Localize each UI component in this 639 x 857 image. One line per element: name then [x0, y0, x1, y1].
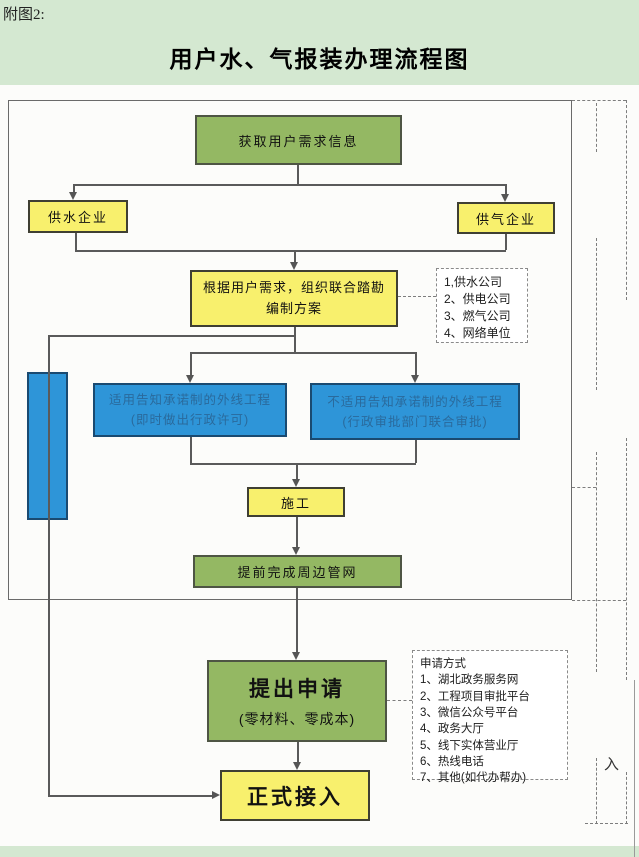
margin-dashed-line [596, 238, 597, 390]
margin-dashed-line [596, 103, 597, 152]
apply-method-item: 5、线下实体营业厅 [420, 738, 560, 754]
connector-line [190, 352, 192, 377]
margin-dashed-line [572, 100, 626, 101]
margin-dashed-line [626, 100, 627, 300]
node-official-connection-label: 正式接入 [247, 781, 343, 811]
dashed-link-methods-note [387, 700, 412, 701]
apply-method-item: 7、其他(如代办帮办) [420, 770, 560, 786]
footer-band [0, 846, 639, 857]
figure-tag: 附图2: [3, 3, 45, 24]
enter-character-label: 入 [604, 753, 619, 774]
connector-line [190, 437, 192, 463]
arrowhead-right [212, 791, 220, 799]
connector-line [190, 463, 416, 465]
node-submit-application-line2: (零材料、零成本) [239, 709, 355, 729]
node-pipe-network: 提前完成周边管网 [193, 555, 402, 588]
connector-line [296, 588, 298, 654]
connector-line [73, 184, 506, 186]
node-submit-application-line1: 提出申请 [249, 673, 345, 703]
connector-line [75, 233, 77, 250]
connector-line [48, 335, 294, 337]
apply-methods-title: 申请方式 [420, 656, 560, 672]
apply-method-item: 1、湖北政务服务网 [420, 672, 560, 688]
connector-line [296, 517, 298, 549]
node-gas-company: 供气企业 [457, 202, 555, 234]
margin-dashed-line [626, 772, 627, 824]
node-promise-system-line1: 适用告知承诺制的外线工程 [109, 390, 271, 410]
survey-units-note: 1,供水公司 2、供电公司 3、燃气公司 4、网络单位 [436, 268, 528, 343]
node-water-company: 供水企业 [28, 200, 128, 233]
node-water-company-label: 供水企业 [48, 207, 108, 226]
arrowhead-down [186, 375, 194, 383]
node-joint-survey-plan: 根据用户需求，组织联合踏勘 编制方案 [190, 270, 398, 327]
node-gas-company-label: 供气企业 [476, 209, 536, 228]
flowchart-page: 附图2: 用户水、气报装办理流程图 获取用户需求信息 供水企业 供气企业 根据用… [0, 0, 639, 857]
survey-unit-item: 2、供电公司 [444, 291, 520, 308]
margin-dashed-line [626, 438, 627, 680]
node-joint-survey-plan-line2: 编制方案 [266, 299, 322, 319]
node-get-demand: 获取用户需求信息 [195, 115, 402, 165]
node-joint-survey-plan-line1: 根据用户需求，组织联合踏勘 [203, 278, 385, 298]
margin-dashed-line [596, 452, 597, 672]
apply-method-item: 4、政务大厅 [420, 721, 560, 737]
connector-line [190, 352, 416, 354]
connector-line [505, 234, 507, 250]
connector-line [297, 742, 299, 764]
flowchart-frame [8, 100, 572, 600]
node-official-connection: 正式接入 [220, 770, 370, 821]
arrowhead-down [69, 192, 77, 200]
apply-methods-note: 申请方式 1、湖北政务服务网 2、工程项目审批平台 3、微信公众号平台 4、政务… [412, 650, 568, 780]
arrowhead-down [290, 262, 298, 270]
margin-dashed-line [596, 758, 597, 824]
connector-line [415, 352, 417, 377]
survey-unit-item: 4、网络单位 [444, 325, 520, 342]
apply-method-item: 3、微信公众号平台 [420, 705, 560, 721]
connector-line-bypass [48, 335, 50, 795]
node-pipe-network-label: 提前完成周边管网 [237, 562, 357, 581]
node-get-demand-label: 获取用户需求信息 [238, 131, 358, 150]
arrowhead-down [501, 194, 509, 202]
apply-method-item: 2、工程项目审批平台 [420, 689, 560, 705]
arrowhead-down [293, 762, 301, 770]
apply-method-item: 6、热线电话 [420, 754, 560, 770]
margin-dashed-line [585, 823, 628, 824]
arrowhead-down [292, 652, 300, 660]
node-construction-label: 施工 [281, 493, 311, 512]
connector-line [48, 795, 212, 797]
node-promise-system-line2: (即时做出行政许可) [131, 410, 249, 430]
connector-line [415, 440, 417, 463]
node-promise-system: 适用告知承诺制的外线工程 (即时做出行政许可) [93, 383, 287, 437]
node-no-promise-system-line2: (行政审批部门联合审批) [342, 412, 487, 432]
node-construction: 施工 [247, 487, 345, 517]
margin-dashed-line [572, 487, 596, 488]
arrowhead-down [292, 547, 300, 555]
node-submit-application: 提出申请 (零材料、零成本) [207, 660, 387, 742]
node-no-promise-system: 不适用告知承诺制的外线工程 (行政审批部门联合审批) [310, 383, 520, 440]
scan-edge-line [634, 680, 635, 857]
margin-dashed-line [572, 600, 626, 601]
page-title: 用户水、气报装办理流程图 [0, 40, 639, 74]
arrowhead-down [292, 479, 300, 487]
node-no-promise-system-line1: 不适用告知承诺制的外线工程 [327, 392, 503, 412]
arrowhead-down [411, 375, 419, 383]
survey-unit-item: 1,供水公司 [444, 274, 520, 291]
connector-line [297, 165, 299, 184]
connector-line [294, 327, 296, 353]
dashed-link-survey-note [398, 296, 436, 297]
survey-unit-item: 3、燃气公司 [444, 308, 520, 325]
connector-line [75, 250, 506, 252]
